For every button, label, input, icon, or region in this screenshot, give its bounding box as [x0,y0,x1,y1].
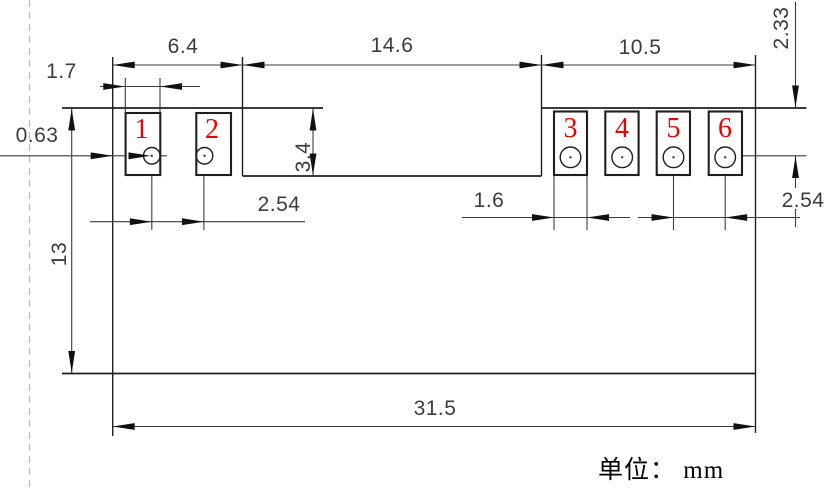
pad-hole-center-5 [672,156,674,158]
arrow-3.4-top [310,109,317,131]
arrow-10.5-right [734,62,756,69]
arrow-14.6-left [243,62,265,69]
pad-number-2: 2 [205,114,219,145]
arrow-0.63-a [91,152,113,159]
dim-label-3.4: 3.4 [292,142,315,173]
arrow-13-top [68,109,75,131]
pad-hole-center-2 [203,155,205,157]
arrow-13-bottom [68,351,75,373]
dim-label-1.6: 1.6 [474,189,505,212]
pad-number-1: 1 [135,114,149,145]
dim-label-31.5: 31.5 [414,397,457,420]
unit-note: 单位： mm [598,450,724,486]
arrow-2.33-down [792,86,799,108]
pad-number-3: 3 [564,113,578,144]
pad-number-6: 6 [718,113,732,144]
dim-label-6.4: 6.4 [168,35,199,58]
dimension-drawing-page: 1234566.414.610.51.70.632.33133.42.541.6… [0,0,836,490]
arrow-2.54-pitch-left [652,214,674,221]
arrow-6.4-right [221,62,243,69]
pad-hole-center-6 [724,156,726,158]
arrow-2.54-left-b [182,218,204,225]
arrow-1.7-right [160,83,182,90]
dim-label-14.6: 14.6 [371,34,414,57]
arrow-14.6-right [520,62,542,69]
pad-hole-center-1 [151,155,153,157]
dim-label-10.5: 10.5 [619,36,662,59]
dim-label-1.7: 1.7 [46,60,77,83]
dim-label-2.54-right: 2.54 [782,189,825,212]
arrow-2.54-right-up [792,156,799,178]
arrow-1.6-left [532,214,554,221]
arrow-2.54-left-a [130,218,152,225]
arrow-6.4-left [113,62,135,69]
arrow-31.5-right [734,423,756,430]
dim-label-0.63: 0.63 [16,124,59,147]
dimension-drawing-canvas: 1234566.414.610.51.70.632.33133.42.541.6… [0,0,836,490]
pad-hole-center-4 [621,156,623,158]
arrow-2.54-pitch-right [725,214,747,221]
dim-label-2.33: 2.33 [770,7,793,50]
pad-number-4: 4 [615,113,629,144]
dim-label-13: 13 [48,242,71,266]
arrow-10.5-left [542,62,564,69]
arrow-31.5-left [113,423,135,430]
arrow-1.6-right [587,214,609,221]
dim-label-2.54-left: 2.54 [258,193,301,216]
arrow-1.7-left [103,83,125,90]
pad-hole-center-3 [569,156,571,158]
pad-number-5: 5 [667,113,681,144]
